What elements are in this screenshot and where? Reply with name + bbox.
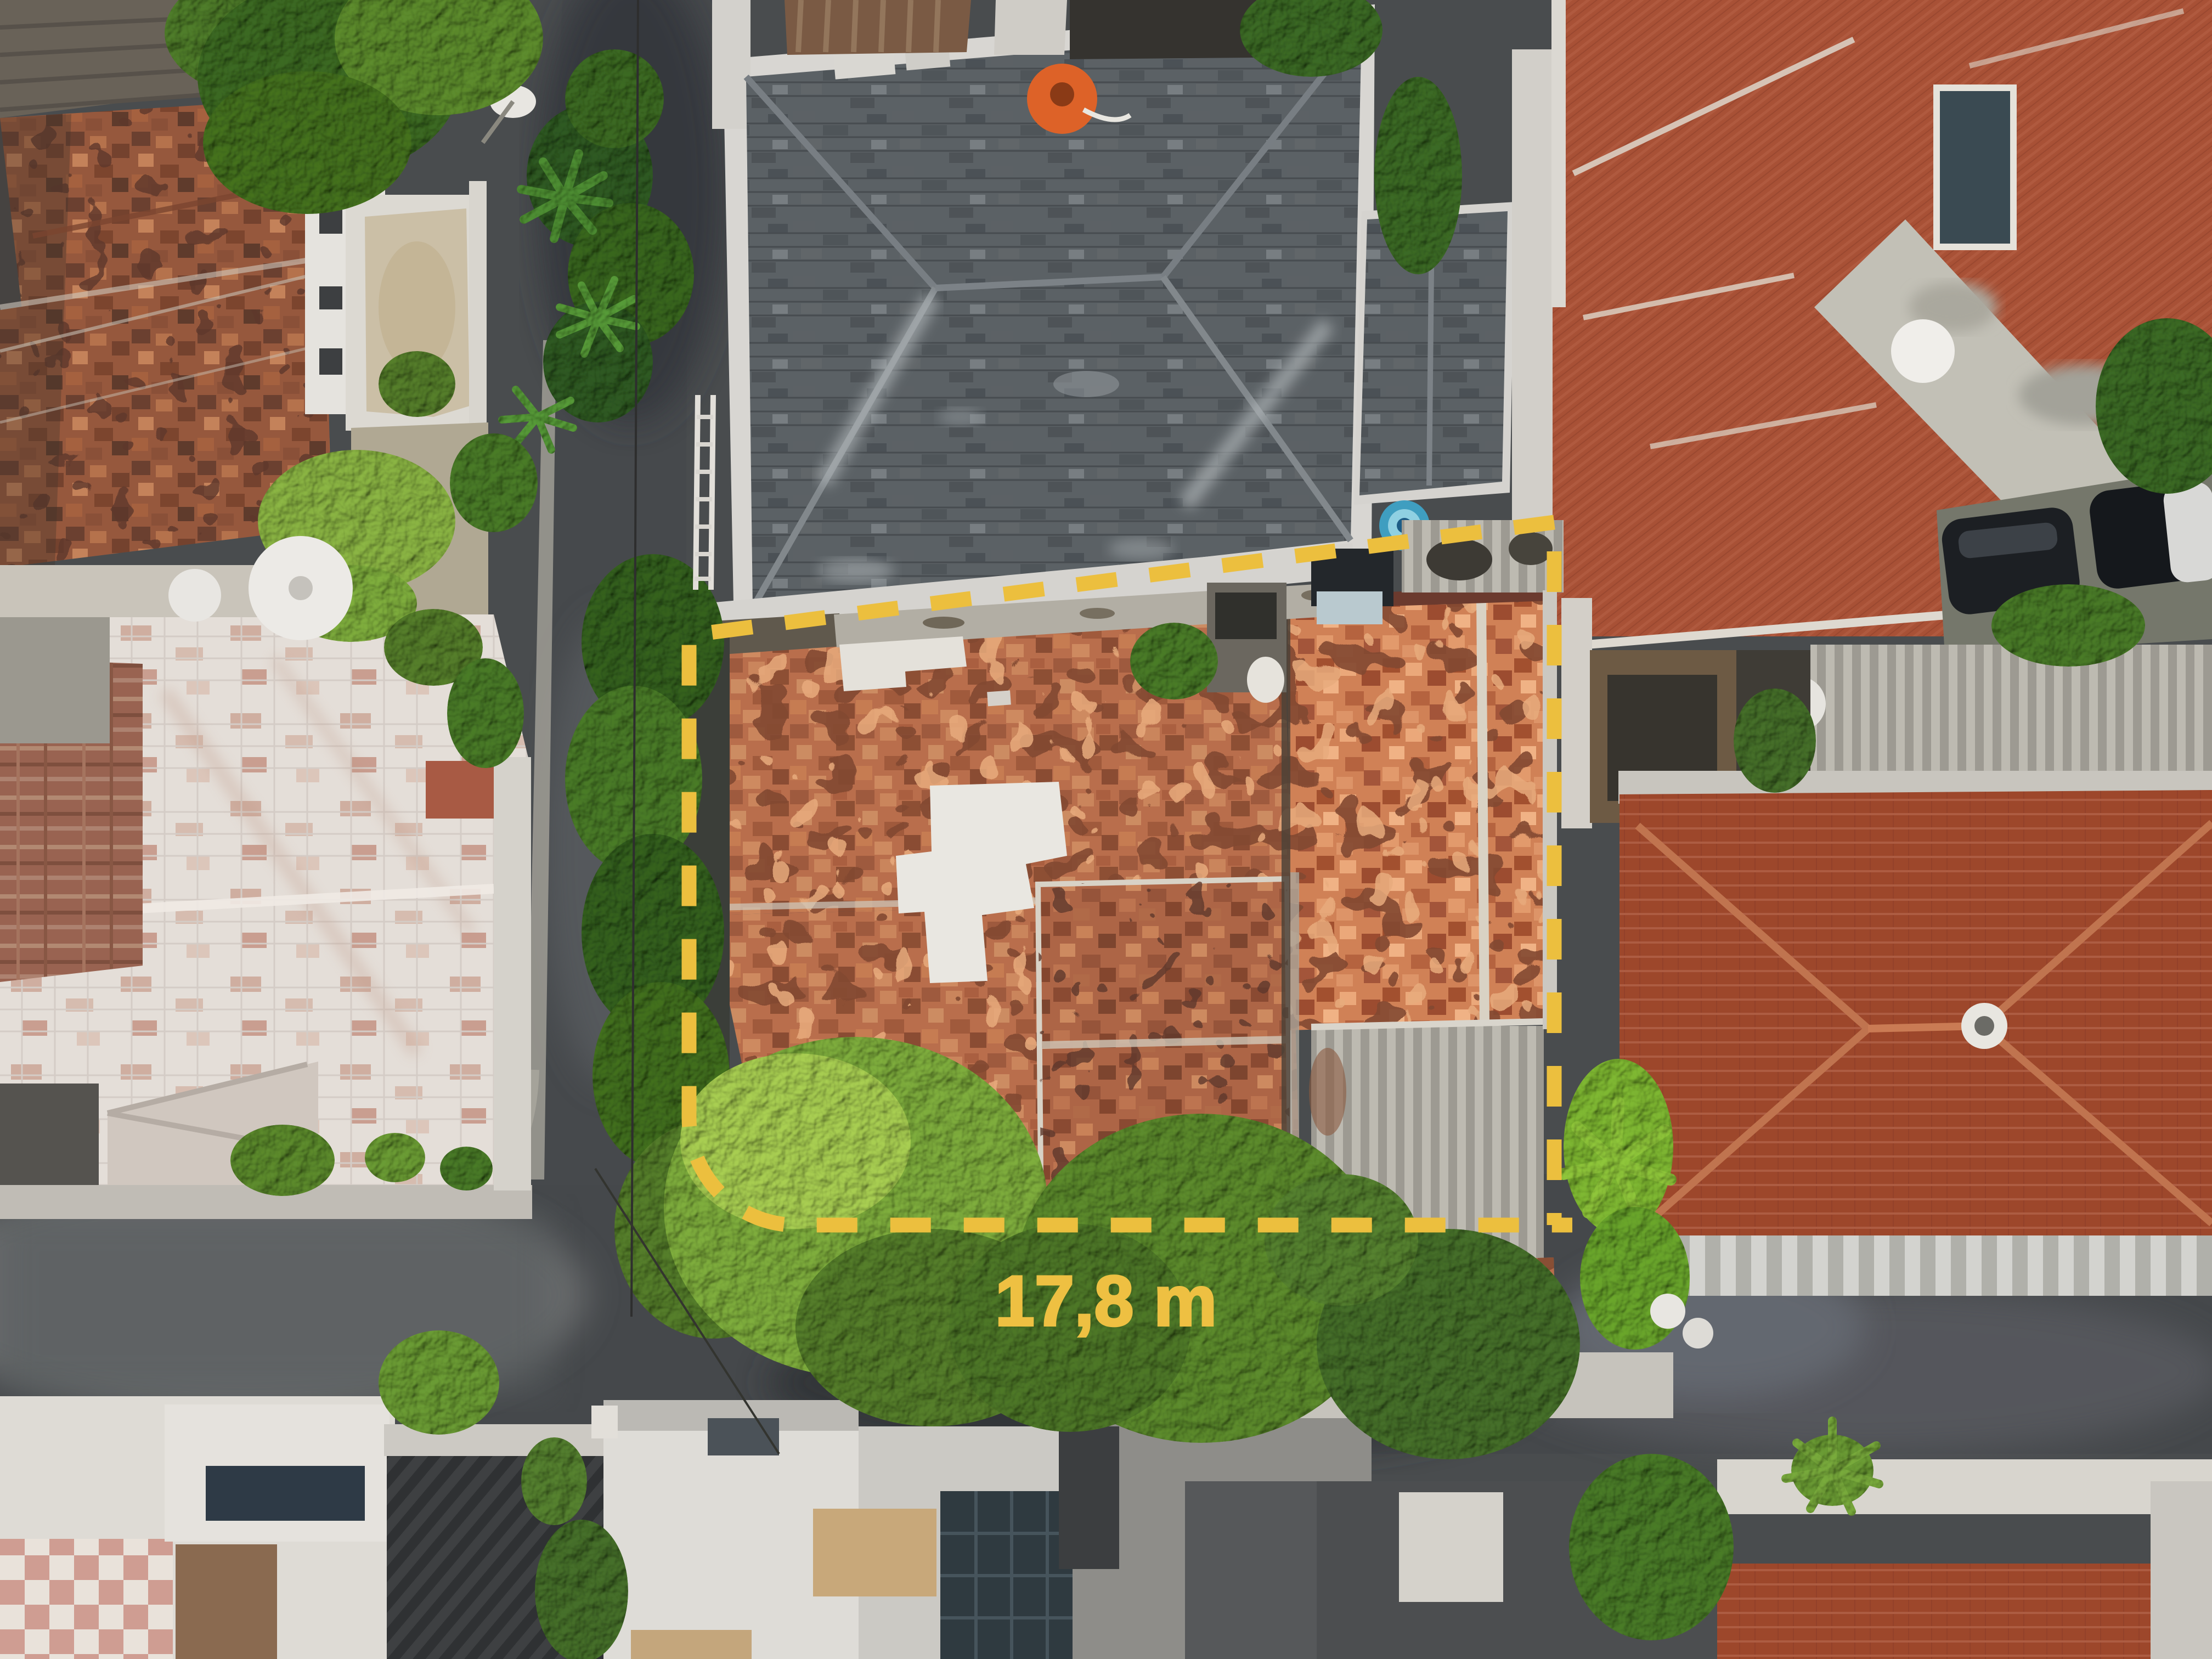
svg-text:17,8 m: 17,8 m [995, 1261, 1217, 1341]
